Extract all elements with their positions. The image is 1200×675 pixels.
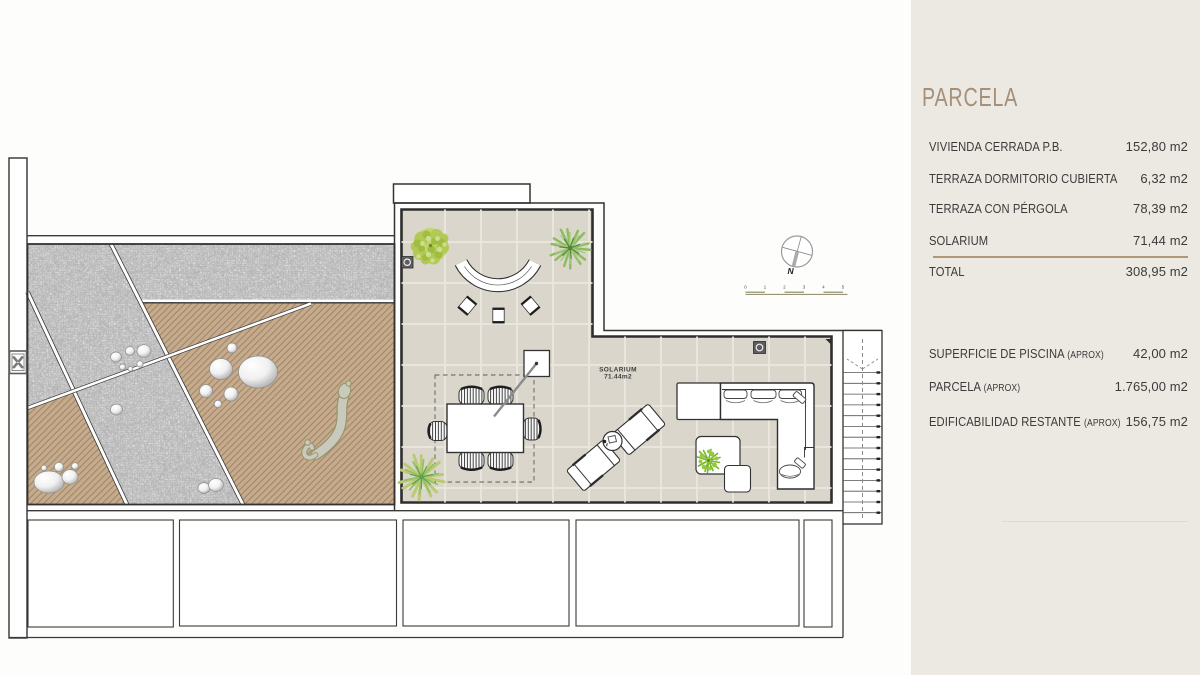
- svg-text:71.44m2: 71.44m2: [604, 374, 632, 381]
- svg-text:SOLARIUM: SOLARIUM: [599, 367, 637, 374]
- svg-text:N: N: [788, 266, 795, 276]
